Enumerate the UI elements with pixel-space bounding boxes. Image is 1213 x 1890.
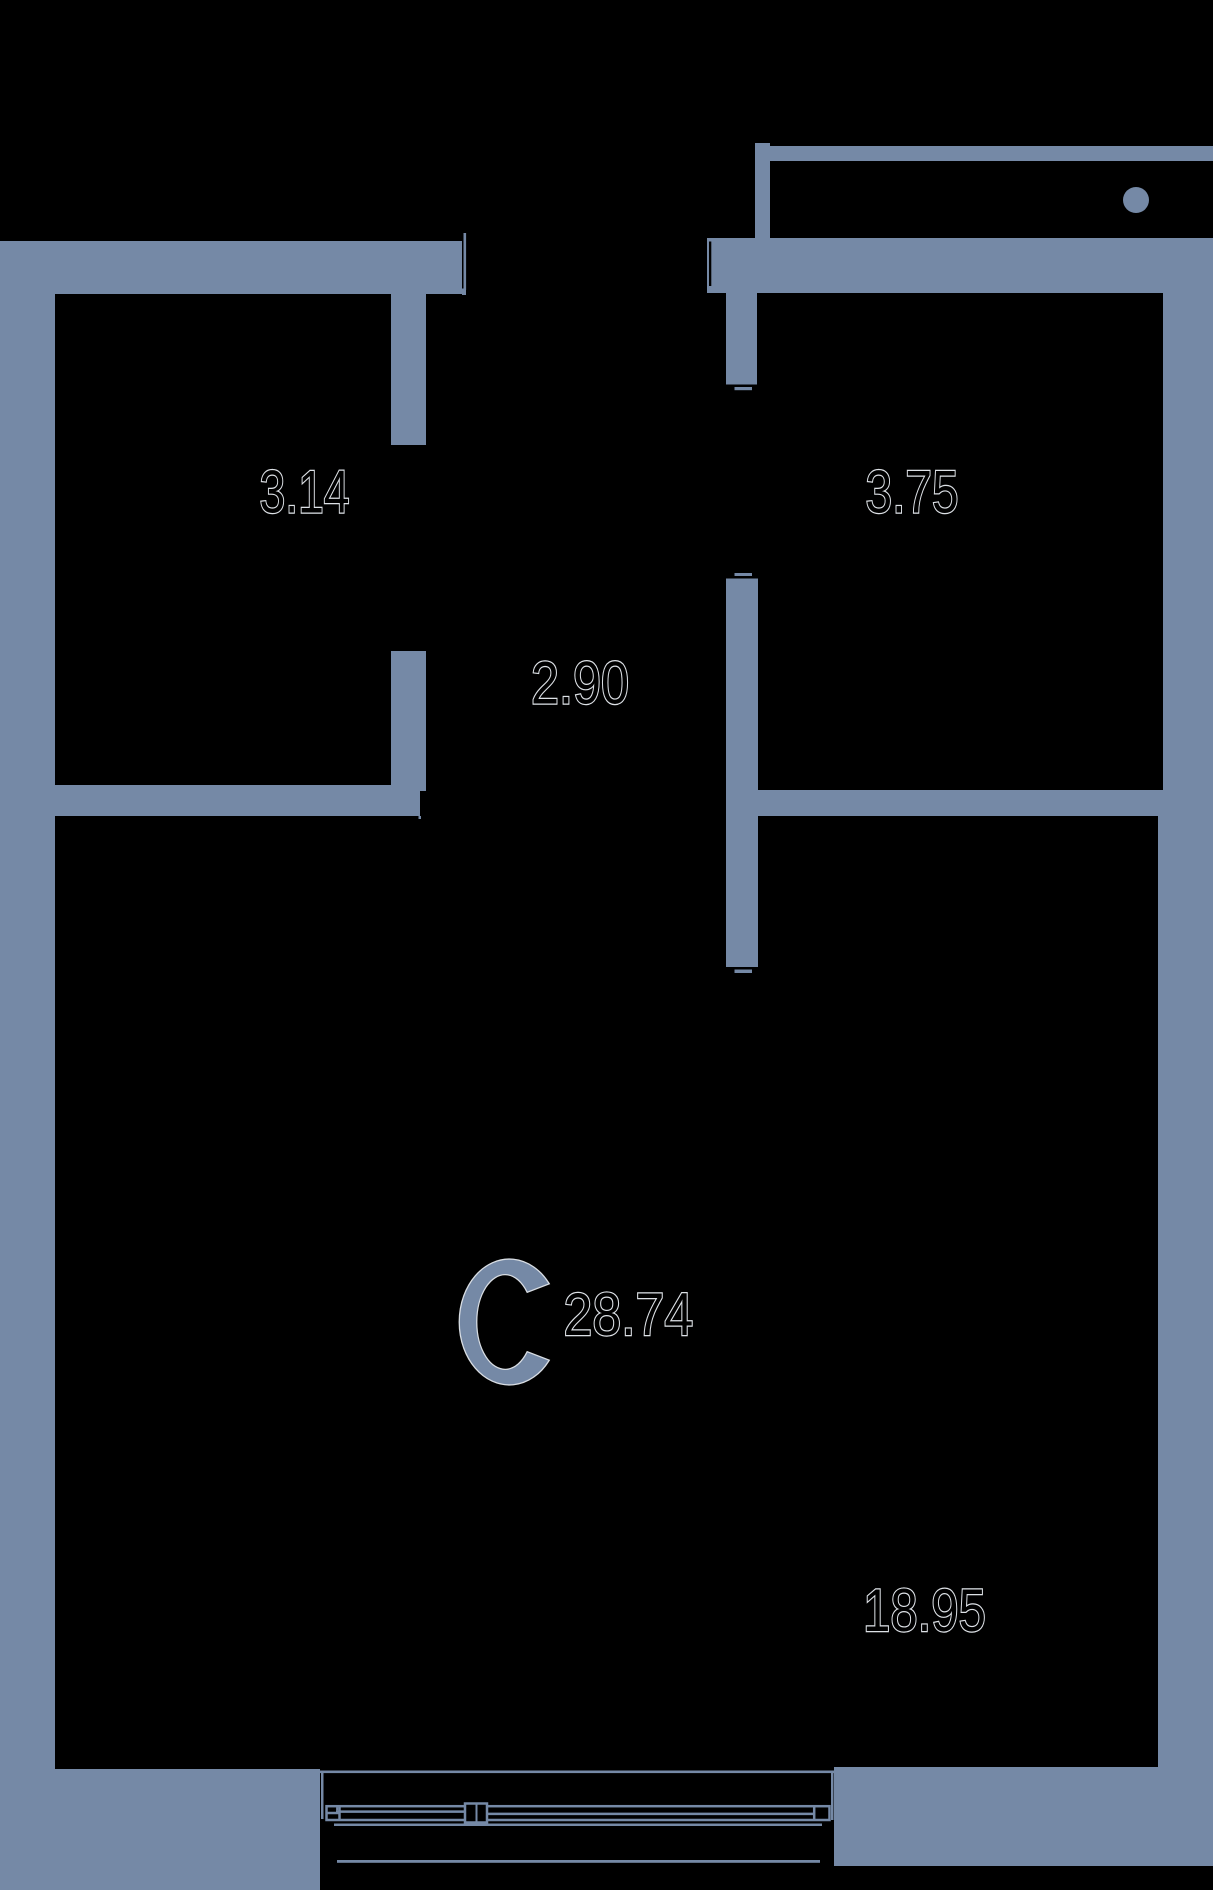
- svg-text:18.95: 18.95: [863, 1576, 986, 1644]
- svg-text:2.90: 2.90: [531, 650, 629, 717]
- svg-text:3.75: 3.75: [866, 460, 959, 526]
- svg-text:28.74: 28.74: [564, 1280, 694, 1347]
- svg-text:3.14: 3.14: [260, 460, 350, 526]
